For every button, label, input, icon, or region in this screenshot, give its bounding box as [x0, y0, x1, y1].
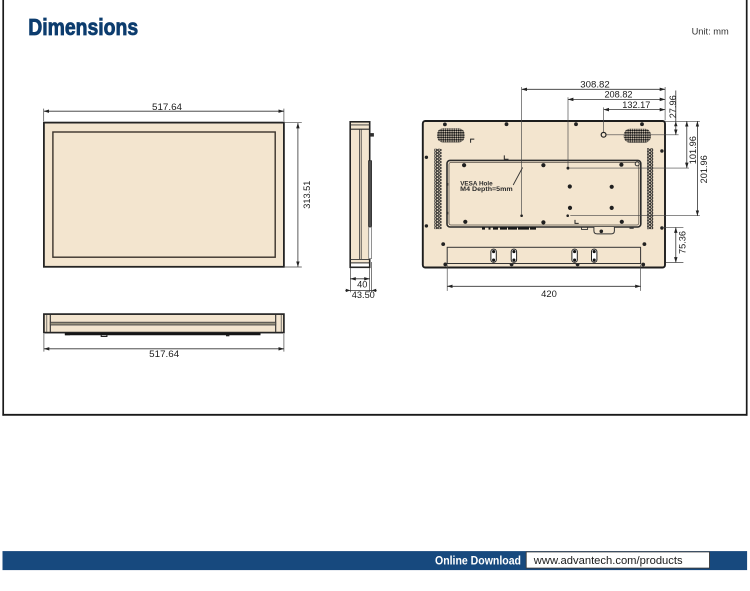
svg-text:Unit: mm: Unit: mm [692, 26, 729, 36]
svg-text:M4 Depth=5mm: M4 Depth=5mm [460, 186, 513, 193]
svg-text:517.64: 517.64 [149, 349, 179, 359]
svg-text:Dimensions: Dimensions [28, 14, 138, 40]
svg-text:40: 40 [357, 279, 367, 289]
svg-text:420: 420 [541, 288, 557, 299]
svg-text:Online Download: Online Download [435, 554, 521, 568]
svg-text:208.82: 208.82 [604, 90, 632, 100]
svg-text:101.96: 101.96 [688, 136, 698, 164]
svg-text:www.advantech.com/products: www.advantech.com/products [533, 555, 683, 567]
svg-text:132.17: 132.17 [622, 100, 650, 110]
svg-text:517.64: 517.64 [152, 102, 182, 112]
svg-text:308.82: 308.82 [580, 79, 609, 89]
svg-text:313.51: 313.51 [302, 181, 312, 209]
svg-text:27.96: 27.96 [668, 95, 678, 118]
svg-text:201.96: 201.96 [699, 155, 709, 183]
svg-text:75.36: 75.36 [677, 231, 687, 254]
svg-text:43.50: 43.50 [352, 290, 375, 300]
